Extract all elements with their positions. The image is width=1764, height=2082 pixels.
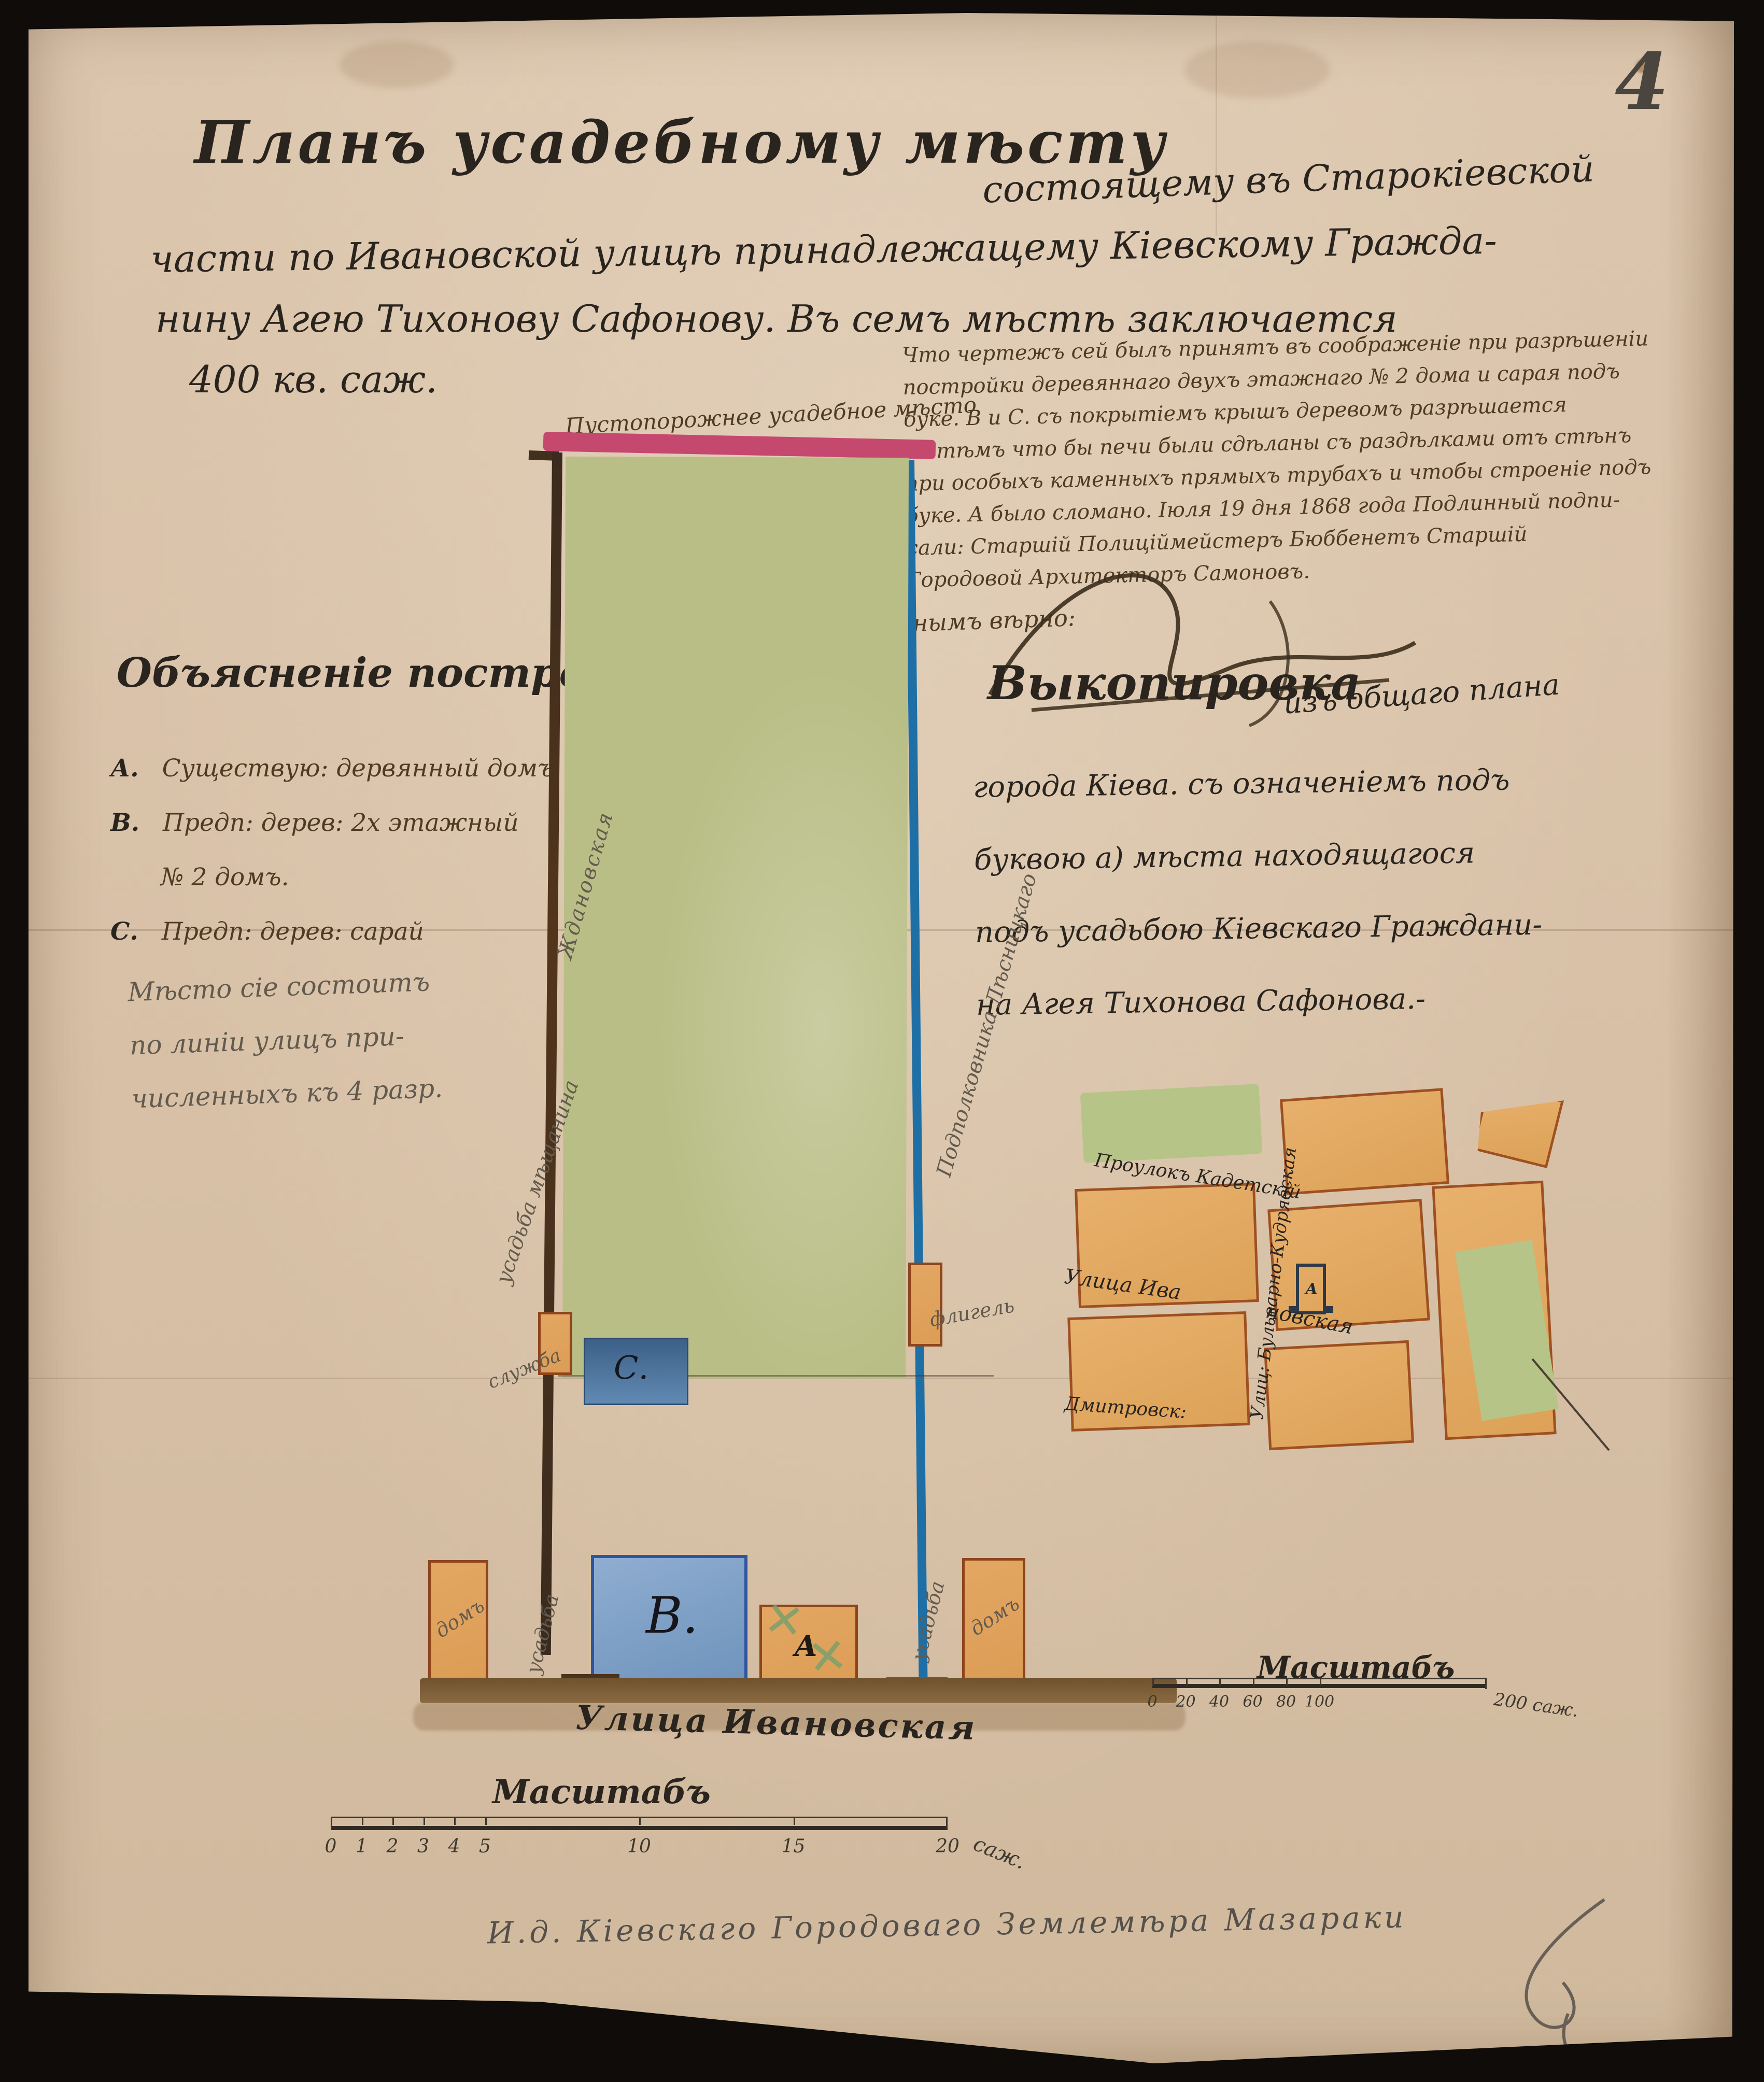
scale-tick-label: 5 (479, 1836, 491, 1857)
street-band (420, 1678, 1177, 1703)
scale-end-label: 200 саж. (1492, 1689, 1579, 1722)
scale-tick-label: 0 (1147, 1693, 1157, 1711)
scale-tick (1485, 1678, 1487, 1689)
legend-letter-a: А. (110, 754, 139, 783)
scale-tick-label: 15 (782, 1836, 806, 1857)
scale-tick-label: 20 (936, 1836, 959, 1857)
scale-tick (639, 1817, 641, 1825)
scale-tick-label: 1 (356, 1836, 368, 1857)
excerpt-line: на Агея Тихонова Сафонова.- (976, 959, 1713, 1042)
legend-item-a: А. Существую: дервянный домъ (110, 754, 554, 783)
scale-tick (1186, 1678, 1188, 1686)
photographed-archival-sheet: { "page_number": "4", "title": { "main":… (0, 0, 1764, 2082)
scale-tick (1152, 1678, 1154, 1686)
inset-city-block (1264, 1340, 1414, 1450)
scale-tick (946, 1817, 948, 1829)
excerpt-line: города Кіева. съ означеніемъ подъ (972, 741, 1710, 824)
building-c-label: С. (614, 1349, 648, 1386)
title-line-2: части по Ивановской улицѣ принадлежащему… (150, 219, 1498, 281)
pencil-note-line: численныхъ къ 4 разр. (131, 1061, 444, 1126)
excerpt-paragraph: города Кіева. съ означеніемъ подъ буквою… (972, 741, 1713, 1042)
yard-label-left-bottom: усадьба (521, 1592, 563, 1676)
paper-stain (340, 41, 454, 88)
scale-tick (794, 1817, 795, 1825)
outbuilding-right-block (908, 1263, 942, 1347)
inset-scale-bar: 0 20 40 60 80 100 200 саж. (1152, 1678, 1487, 1688)
house-left-label: домъ (431, 1594, 488, 1642)
inset-city-block (1432, 1181, 1556, 1440)
scale-tick-label: 0 (325, 1836, 337, 1857)
scale-tick-label: 100 (1305, 1693, 1334, 1711)
plan-west-boundary (541, 452, 562, 1655)
surveyor-flourish (1449, 1889, 1625, 2060)
scale-tick-label: 10 (627, 1836, 651, 1857)
scale-tick (362, 1817, 363, 1825)
scale-tick (1286, 1678, 1288, 1686)
inset-city-block (1472, 1082, 1564, 1168)
legend-pencil-note: Мѣсто сіе состоитъ по линіи улицъ при- ч… (127, 955, 444, 1126)
building-c-shed: С. (584, 1338, 688, 1405)
page-title: Планъ усадебному мѣсту (194, 109, 1168, 177)
legend-letter-c: С. (110, 917, 138, 946)
house-right-label: домъ (966, 1592, 1023, 1640)
demolition-x-mark: ✕ (805, 1627, 851, 1686)
legend-item-b: В. Предп: дерев: 2х этажный (110, 809, 519, 837)
excerpt-line: подъ усадьбою Кіевскаго Граждани- (975, 886, 1712, 969)
scale-tick (331, 1817, 332, 1829)
inset-city-block (1280, 1088, 1449, 1195)
scale-tick-label: 20 (1176, 1693, 1195, 1711)
scale-tick (1320, 1678, 1321, 1686)
excerpt-line: буквою а) мѣста находящагося (973, 814, 1711, 897)
building-b-proposed-house: В. (591, 1555, 747, 1691)
property-marker-letter: А (1305, 1280, 1318, 1298)
main-scale-title: Масштабъ (492, 1773, 711, 1811)
legend-item-b2: № 2 домъ. (161, 863, 289, 891)
paper-stain (1184, 41, 1330, 98)
surveyor-signature: И.д. Кіевскаго Городоваго Землемѣра Маза… (487, 1900, 1407, 1951)
legend-item-c: С. Предп: дерев: сарай (110, 917, 424, 946)
legend-text-b: Предп: дерев: 2х этажный (163, 809, 519, 837)
house-right-block: домъ (962, 1558, 1025, 1680)
legend-text-c: Предп: дерев: сарай (162, 917, 424, 946)
scale-tick (454, 1817, 456, 1825)
scale-tick-label: 80 (1276, 1693, 1296, 1711)
scale-tick-label: 60 (1243, 1693, 1262, 1711)
scale-tick-label: 4 (448, 1836, 460, 1857)
page-number: 4 (1615, 36, 1669, 128)
document-sheet: 4 Планъ усадебному мѣсту состоящему въ С… (29, 13, 1734, 2065)
main-scale-bar: 0 1 2 3 4 5 10 15 20 саж. (331, 1817, 948, 1830)
scale-tick-label: 3 (417, 1836, 429, 1857)
scale-tick-label: 2 (387, 1836, 399, 1857)
scale-tick (1253, 1678, 1254, 1686)
yard-label-right-bottom: усадьба (907, 1579, 949, 1663)
building-a-existing-house: ✕ А ✕ (759, 1605, 858, 1690)
plan-green-plot (562, 457, 909, 1379)
plot-area-value: 400 кв. саж. (189, 358, 438, 401)
plan-east-boundary (906, 460, 928, 1688)
building-b-label: В. (646, 1587, 698, 1645)
scale-tick (1219, 1678, 1221, 1686)
house-left-block: домъ (428, 1560, 488, 1680)
scale-unit-label: саж. (970, 1832, 1029, 1874)
inset-green-area (1455, 1240, 1559, 1421)
legend-letter-b: В. (110, 809, 139, 837)
scale-tick (424, 1817, 425, 1825)
inset-city-map: А Проулокъ Кадетскій Улица Ива новская У… (1076, 1082, 1558, 1455)
legend-text-a: Существую: дервянный домъ (162, 754, 554, 783)
scale-tick-label: 40 (1209, 1693, 1229, 1711)
plan-north-boundary-pink (543, 432, 936, 459)
scale-tick (392, 1817, 394, 1825)
scale-tick (485, 1817, 487, 1825)
